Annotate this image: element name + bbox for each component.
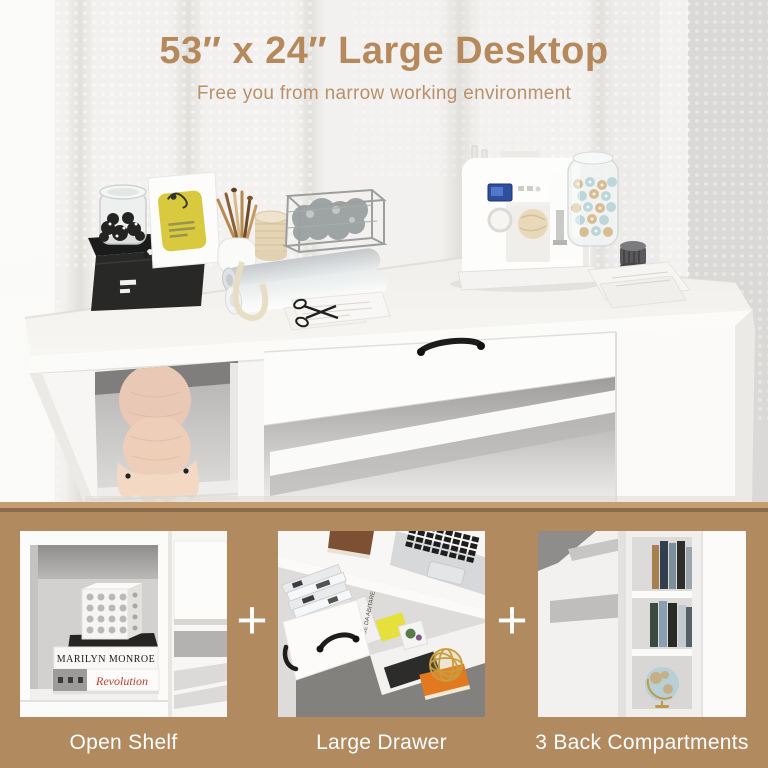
books-middle	[650, 601, 692, 647]
spool-jar	[568, 152, 618, 246]
plus-separator: +	[236, 593, 268, 647]
plush-toy	[117, 364, 199, 503]
subheadline: Free you from narrow working environment	[0, 83, 768, 105]
yarn-ball	[518, 209, 548, 239]
ribbon-spool	[255, 211, 287, 261]
plus-separator: +	[496, 593, 528, 647]
books-top	[652, 541, 692, 589]
desk-side-view	[538, 531, 628, 717]
feature-label-large-drawer: Large Drawer	[278, 731, 485, 755]
book-title-top: MARILYN MONROE	[57, 654, 156, 665]
machine-dial	[489, 209, 511, 231]
feature-panel-large-drawer: CASE DA ABITARE	[278, 531, 485, 717]
feature-label-back-compartments: 3 Back Compartments	[514, 731, 768, 755]
feature-panel-open-shelf: MARILYN MONROE Revolution	[20, 531, 227, 717]
book-title-bottom: Revolution	[95, 674, 148, 688]
floor-line	[0, 502, 768, 508]
book-stack: MARILYN MONROE Revolution	[53, 647, 159, 694]
header: 53″ x 24″ Large Desktop Free you from na…	[0, 0, 768, 105]
glass-jar	[99, 185, 146, 244]
back-compartments	[626, 531, 746, 717]
wire-ball	[430, 649, 463, 682]
feature-label-open-shelf: Open Shelf	[20, 731, 227, 755]
right-cabinet	[616, 310, 755, 505]
open-shelf	[92, 361, 238, 505]
feature-panel-back-compartments	[538, 531, 746, 717]
side-drawer-detail	[168, 531, 227, 717]
greeting-card	[148, 172, 220, 268]
lattice-cube	[82, 583, 142, 639]
headline: 53″ x 24″ Large Desktop	[0, 30, 768, 73]
open-shelf-closeup: MARILYN MONROE Revolution	[20, 531, 168, 717]
product-feature-image: 53″ x 24″ Large Desktop Free you from na…	[0, 0, 768, 768]
